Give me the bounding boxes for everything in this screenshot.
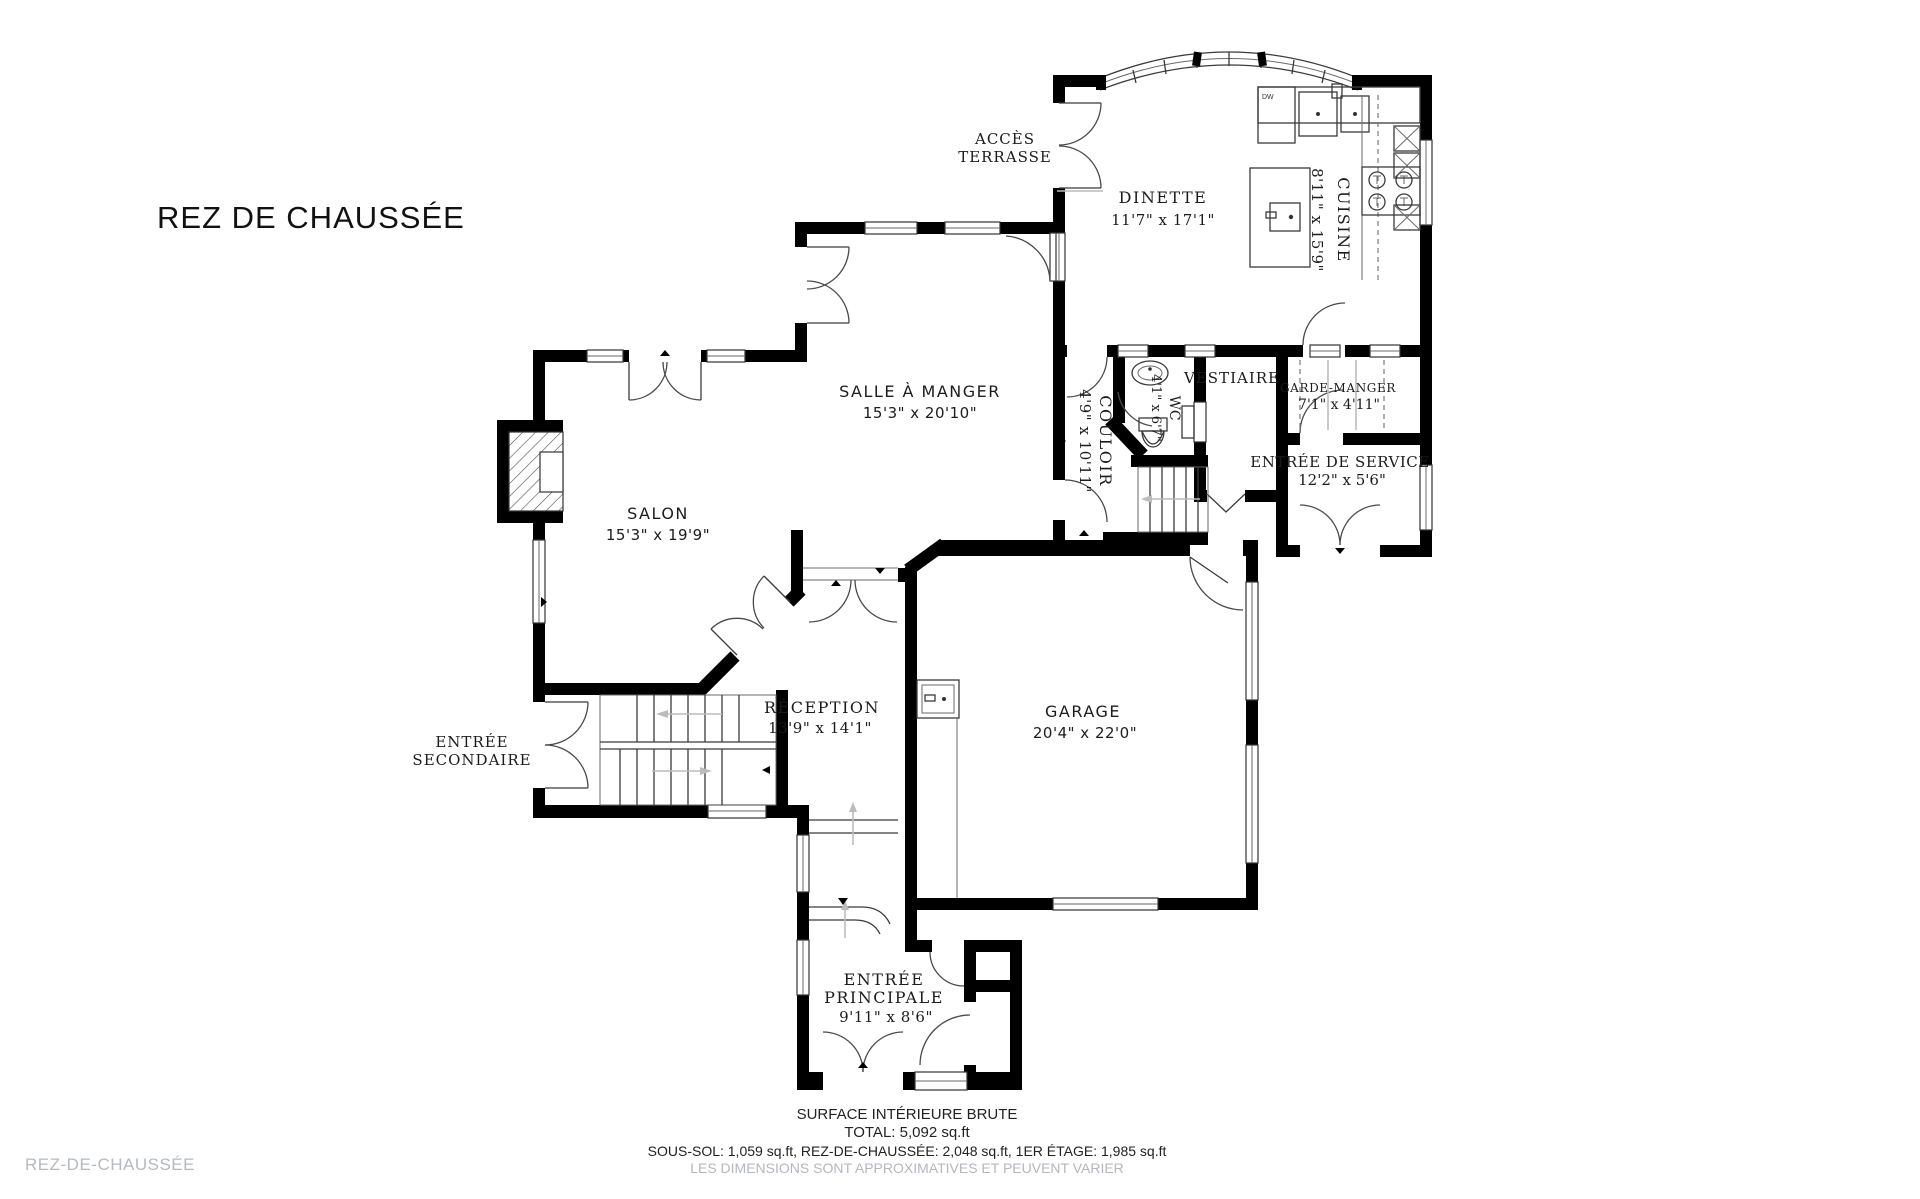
kitchen-sink	[1299, 84, 1369, 136]
entry-upper-door	[930, 952, 964, 986]
garage-hall-door	[1190, 557, 1243, 610]
window	[797, 940, 809, 995]
footer-total-line: TOTAL: 5,092 sq.ft	[844, 1124, 970, 1141]
stairs-main	[600, 695, 776, 805]
room-dims-cuisine: 8'11" x 15'9"	[1308, 168, 1326, 272]
room-label-couloir: COULOIR	[1096, 395, 1115, 486]
reception-doors	[803, 568, 898, 622]
window	[1053, 898, 1158, 910]
room-label-garde-manger: GARDE-MANGER	[1280, 381, 1396, 395]
room-label-entree-secondaire: ENTRÉE	[435, 733, 508, 751]
room-label-salon: SALON	[627, 504, 689, 523]
footer: SURFACE INTÉRIEURE BRUTE TOTAL: 5,092 sq…	[648, 1106, 1167, 1176]
water-heater	[917, 680, 959, 898]
room-dims-wc: 4'1" x 6'7"	[1148, 374, 1163, 442]
room-labels: DINETTE 11'7" x 17'1" CUISINE 8'11" x 15…	[412, 130, 1429, 1026]
room-label-acces-terrasse: ACCÈS	[974, 130, 1035, 148]
window	[797, 835, 809, 892]
footer-surface-line: SURFACE INTÉRIEURE BRUTE	[797, 1106, 1018, 1123]
room-dims-entree-service: 12'2" x 5'6"	[1298, 471, 1386, 489]
salon-terrace-doors	[629, 362, 701, 400]
window	[707, 350, 745, 362]
window	[1310, 345, 1340, 357]
fireplace	[509, 432, 563, 511]
room-dims-garde-manger: 7'1" x 4'11"	[1298, 397, 1380, 413]
room-dims-couloir: 4'9" x 10'11"	[1076, 389, 1094, 493]
room-label-vestiaire: VESTIAIRE	[1183, 369, 1280, 387]
room-label-entree-service: ENTRÉE DE SERVICE	[1250, 453, 1429, 471]
room-label-garage: GARAGE	[1045, 702, 1121, 721]
page-title: REZ DE CHAUSSÉE	[157, 200, 465, 235]
window	[1118, 345, 1148, 357]
room-label-wc: WC	[1166, 395, 1182, 420]
room-dims-garage: 20'4" x 22'0"	[1033, 724, 1137, 742]
room-dims-entree-principale: 9'11" x 8'6"	[839, 1008, 933, 1026]
room-label-entree-principale: ENTRÉE	[844, 969, 925, 989]
dishwasher-label: DW	[1262, 94, 1274, 101]
terrace-door	[1057, 103, 1103, 191]
vestiaire-bifold-door	[1207, 494, 1245, 512]
firebox	[540, 452, 563, 492]
window	[533, 540, 545, 623]
room-label-entree-principale-2: PRINCIPALE	[824, 988, 944, 1007]
kitchen-island	[1250, 168, 1310, 267]
window	[1185, 345, 1215, 357]
window	[1420, 465, 1432, 530]
footer-disclaimer-line: LES DIMENSIONS SONT APPROXIMATIVES ET PE…	[690, 1160, 1124, 1176]
footer-breakdown-line: SOUS-SOL: 1,059 sq.ft, REZ-DE-CHAUSSÉE: …	[648, 1143, 1167, 1159]
window	[708, 805, 766, 818]
salon-reception-doors	[711, 576, 790, 655]
stairs-basement	[1138, 467, 1208, 532]
window	[587, 350, 623, 362]
secondary-entrance-doors	[545, 702, 588, 788]
corridor-steps	[809, 802, 898, 938]
garage-door-panel	[1246, 582, 1258, 700]
watermark-label: REZ-DE-CHAUSSÉE	[25, 1155, 195, 1174]
floor-plan-drawing: DW	[0, 0, 1920, 1199]
kitchen-hall-door	[1303, 303, 1345, 345]
dining-terrace-doors	[807, 247, 849, 323]
bay-window	[1096, 52, 1362, 90]
room-dims-salle-a-manger: 15'3" x 20'10"	[863, 404, 977, 422]
room-label-acces-terrasse-2: TERRASSE	[958, 148, 1052, 166]
room-label-entree-secondaire-2: SECONDAIRE	[412, 751, 531, 769]
window	[1420, 140, 1432, 225]
window	[945, 222, 1000, 234]
vestiaire-recess	[1182, 402, 1206, 442]
room-dims-salon: 15'3" x 19'9"	[606, 526, 710, 544]
window	[865, 222, 917, 234]
floor-plan-page: DW	[0, 0, 1920, 1199]
room-label-salle-a-manger: SALLE À MANGER	[839, 382, 1001, 401]
service-entry-doors	[1300, 505, 1380, 545]
stove	[1362, 167, 1420, 215]
room-dims-reception: 13'9" x 14'1"	[768, 719, 872, 737]
room-label-dinette: DINETTE	[1119, 188, 1208, 207]
window	[915, 1072, 967, 1090]
room-label-cuisine: CUISINE	[1334, 177, 1353, 263]
kitchen-dining-door	[1006, 233, 1056, 281]
garage-door-panel	[1246, 745, 1258, 863]
room-label-reception: RÉCEPTION	[764, 697, 880, 717]
room-dims-dinette: 11'7" x 17'1"	[1111, 211, 1215, 229]
window	[1370, 345, 1400, 357]
garde-manger-shelves	[1300, 360, 1384, 430]
